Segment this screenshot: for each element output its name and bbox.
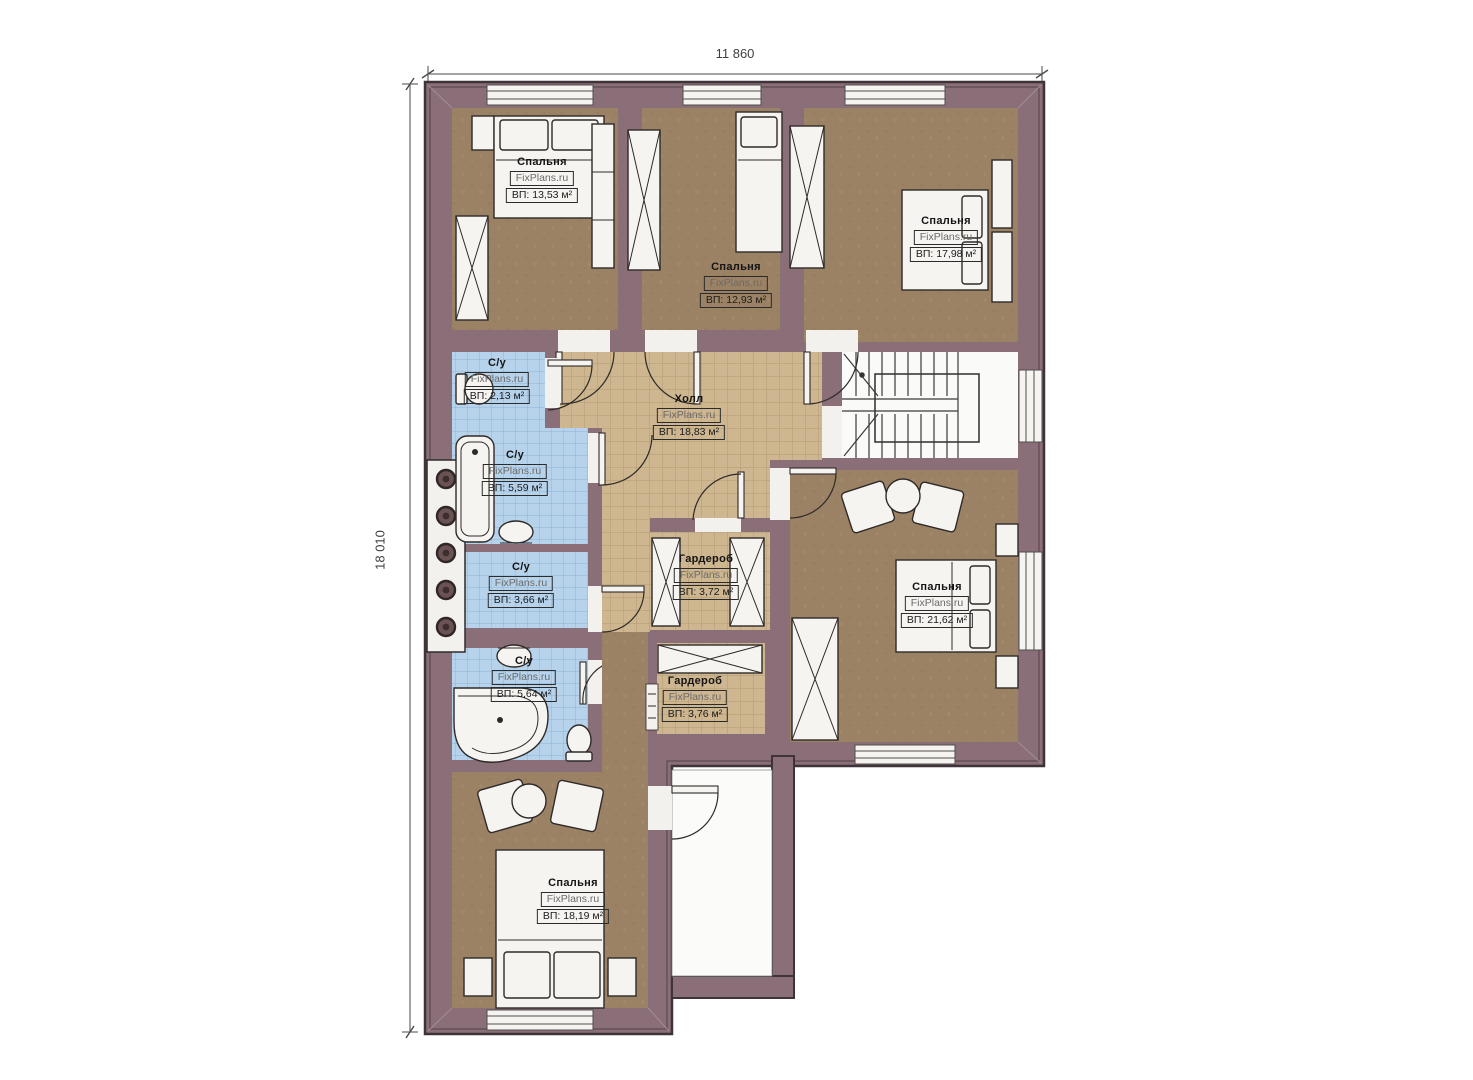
room-brand: FixPlans.ru <box>465 372 530 387</box>
dimension-height-label: 18 010 <box>373 530 388 570</box>
room-label-bathroom-main: С/у FixPlans.ru ВП: 5,59 м² <box>482 450 548 496</box>
door-bathroom-lower <box>580 660 602 704</box>
room-name: Спальня <box>901 582 973 594</box>
pillow <box>500 120 548 150</box>
room-area: ВП: 13,53 м² <box>506 188 578 203</box>
nightstand <box>472 116 494 150</box>
pillow <box>552 120 598 150</box>
sink <box>499 521 533 543</box>
room-label-hall: Холл FixPlans.ru ВП: 18,83 м² <box>653 394 725 440</box>
round-table <box>512 784 546 818</box>
room-brand: FixPlans.ru <box>905 596 970 611</box>
floor-plan-drawing <box>0 0 1473 1080</box>
room-name: Холл <box>653 394 725 406</box>
nightstand <box>996 524 1018 556</box>
room-area: ВП: 5,59 м² <box>482 481 548 496</box>
room-brand: FixPlans.ru <box>704 276 769 291</box>
room-area: ВП: 17,98 м² <box>910 247 982 262</box>
room-area: ВП: 18,83 м² <box>653 425 725 440</box>
toilet-tank <box>566 752 592 761</box>
round-table <box>886 479 920 513</box>
room-area: ВП: 18,19 м² <box>537 909 609 924</box>
room-label-bedroom-right: Спальня FixPlans.ru ВП: 21,62 м² <box>901 582 973 628</box>
room-brand: FixPlans.ru <box>483 464 548 479</box>
room-area: ВП: 2,13 м² <box>464 389 530 404</box>
room-label-bedroom-top-middle: Спальня FixPlans.ru ВП: 12,93 м² <box>700 262 772 308</box>
window-right-bedroom <box>1019 552 1042 650</box>
room-label-wardrobe-lower: Гардероб FixPlans.ru ВП: 3,76 м² <box>662 676 728 722</box>
room-brand: FixPlans.ru <box>492 670 557 685</box>
room-label-wc-middle: С/у FixPlans.ru ВП: 3,66 м² <box>488 562 554 608</box>
pillow <box>741 117 777 147</box>
room-brand: FixPlans.ru <box>657 408 722 423</box>
corridor-floor <box>602 632 648 772</box>
nightstand <box>992 232 1012 302</box>
opening-hall-stairs <box>822 406 842 458</box>
room-label-wardrobe-upper: Гардероб FixPlans.ru ВП: 3,72 м² <box>673 554 739 600</box>
door-wardrobe-lower-sliding <box>646 684 658 730</box>
room-brand: FixPlans.ru <box>663 690 728 705</box>
shelf-cabinet <box>592 124 614 268</box>
dimension-line-top <box>422 66 1048 82</box>
room-area: ВП: 5,64 м² <box>491 687 557 702</box>
balcony-floor <box>672 770 772 976</box>
window-right-stairs <box>1019 370 1042 442</box>
room-label-bedroom-top-right: Спальня FixPlans.ru ВП: 17,98 м² <box>910 216 982 262</box>
dimension-line-left <box>402 78 418 1038</box>
room-label-bathroom-lower: С/у FixPlans.ru ВП: 5,64 м² <box>491 656 557 702</box>
room-name: Спальня <box>910 216 982 228</box>
room-brand: FixPlans.ru <box>914 230 979 245</box>
toilet <box>567 725 591 755</box>
room-area: ВП: 21,62 м² <box>901 613 973 628</box>
room-brand: FixPlans.ru <box>489 576 554 591</box>
window-top-2 <box>683 85 761 105</box>
room-label-bedroom-top-left: Спальня FixPlans.ru ВП: 13,53 м² <box>506 157 578 203</box>
window-top-1 <box>487 85 593 105</box>
room-name: С/у <box>491 656 557 668</box>
room-area: ВП: 3,76 м² <box>662 707 728 722</box>
room-area: ВП: 12,93 м² <box>700 293 772 308</box>
room-name: С/у <box>464 358 530 370</box>
room-area: ВП: 3,72 м² <box>673 585 739 600</box>
nightstand <box>464 958 492 996</box>
pillow <box>554 952 600 998</box>
room-name: С/у <box>482 450 548 462</box>
window-bedroom-right-south <box>855 745 955 764</box>
room-brand: FixPlans.ru <box>510 171 575 186</box>
floor-plan-page: Спальня FixPlans.ru ВП: 13,53 м² Спальня… <box>0 0 1473 1080</box>
room-name: Гардероб <box>662 676 728 688</box>
armchair <box>550 780 604 833</box>
room-brand: FixPlans.ru <box>541 892 606 907</box>
room-label-bedroom-bottom: Спальня FixPlans.ru ВП: 18,19 м² <box>537 878 609 924</box>
nightstand <box>996 656 1018 688</box>
room-name: Спальня <box>506 157 578 169</box>
room-name: С/у <box>488 562 554 574</box>
window-bedroom-bottom <box>487 1010 593 1030</box>
room-brand: FixPlans.ru <box>674 568 739 583</box>
room-name: Спальня <box>537 878 609 890</box>
window-top-3 <box>845 85 945 105</box>
nightstand <box>608 958 636 996</box>
pillow <box>504 952 550 998</box>
room-label-wc-small: С/у FixPlans.ru ВП: 2,13 м² <box>464 358 530 404</box>
room-area: ВП: 3,66 м² <box>488 593 554 608</box>
room-name: Гардероб <box>673 554 739 566</box>
wardrobe-lower-cabinets <box>658 645 762 673</box>
nightstand <box>992 160 1012 228</box>
dimension-width-label: 11 860 <box>716 46 755 61</box>
room-name: Спальня <box>700 262 772 274</box>
